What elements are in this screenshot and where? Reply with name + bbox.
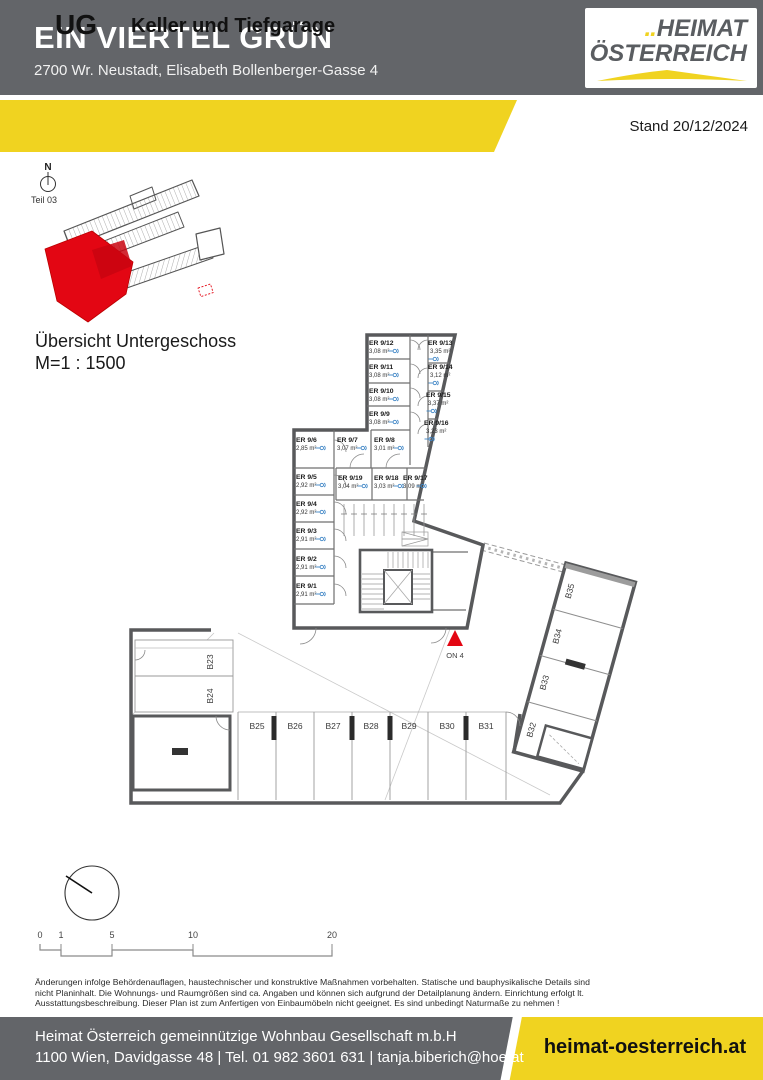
room-label: ER 9/7 [337, 437, 358, 444]
room-label: ER 9/2 [296, 556, 317, 563]
scale-bar: 0 1 5 10 20 [37, 930, 337, 956]
room-label: ER 9/19 [338, 475, 363, 482]
room-area: 2,91 m² [296, 592, 316, 598]
parking-spot-label: B30 [439, 721, 454, 731]
room-label: ER 9/4 [296, 501, 317, 508]
disclaimer-line: Ausstattungsbeschreibung. Dieser Plan is… [35, 998, 725, 1009]
room-label: ER 9/9 [369, 411, 390, 418]
parking-spot-label: B28 [363, 721, 378, 731]
parking-spot-label: B25 [249, 721, 264, 731]
garage-ramp [481, 543, 566, 572]
entrance-marker-label: ON 4 [446, 651, 464, 660]
room-label: ER 9/3 [296, 528, 317, 535]
room-label: ER 9/10 [369, 388, 394, 395]
footer-contact: 1100 Wien, Davidgasse 48 | Tel. 01 982 3… [35, 1049, 524, 1066]
room-area: 2,91 m² [296, 565, 316, 571]
room-area: 3,08 m² [369, 397, 389, 403]
room-label: ER 9/15 [426, 392, 451, 399]
parking-spot-label: B31 [478, 721, 493, 731]
room-label: ER 9/12 [369, 340, 394, 347]
north-indicator: N Teil 03 [31, 162, 57, 205]
parking-spot-label: B29 [401, 721, 416, 731]
parking-spot-label: B26 [287, 721, 302, 731]
room-area: 3,01 m² [374, 446, 394, 452]
parking-left-block: B23 B24 [135, 640, 233, 712]
room-area: 2,85 m² [296, 446, 316, 452]
room-area: 2,92 m² [296, 483, 316, 489]
elevator [384, 570, 412, 604]
room-label: ER 9/18 [374, 475, 399, 482]
room-label: ER 9/16 [424, 420, 449, 427]
room-area: 3,08 m² [369, 349, 389, 355]
room-area: 3,12 m² [430, 373, 450, 379]
part-label: Teil 03 [31, 195, 57, 205]
room-label: ER 9/17 [403, 475, 428, 482]
scale-tick: 0 [37, 930, 42, 940]
scale-tick: 10 [188, 930, 198, 940]
room-label: ER 9/14 [428, 364, 453, 371]
scale-tick: 1 [58, 930, 63, 940]
north-label: N [44, 162, 51, 173]
room-label: ER 9/13 [428, 340, 453, 347]
entrance-marker: ON 4 [446, 630, 464, 660]
room-label: ER 9/11 [369, 364, 393, 371]
parking-bottom-row: B25 B26 B27 B28 B29 B30 B31 [238, 712, 520, 800]
room-area: 3,07 m² [337, 446, 357, 452]
overview-map [0, 0, 224, 322]
room-area: 3,35 m² [430, 349, 450, 355]
disclaimer: Änderungen infolge Behördenauflagen, hau… [35, 977, 725, 1009]
room-label: ER 9/1 [296, 583, 317, 590]
plan-sheet: EIN VIERTEL GRÜN 2700 Wr. Neustadt, Elis… [0, 0, 763, 1080]
room-area: 3,08 m² [369, 420, 389, 426]
parking-spot-label: B23 [205, 654, 215, 669]
room-area: 3,37 m² [428, 401, 448, 407]
parking-spot-label: B27 [325, 721, 340, 731]
room-area: 3,03 m² [374, 484, 394, 490]
room-label: ER 9/5 [296, 474, 317, 481]
room-area: 2,92 m² [296, 510, 316, 516]
room-area: 2,91 m² [296, 537, 316, 543]
footer-company: Heimat Österreich gemeinnützige Wohnbau … [35, 1028, 457, 1045]
compass-icon [65, 866, 119, 920]
floor-plan-svg: N Teil 03 [0, 0, 763, 1080]
room-area: 3,04 m² [338, 484, 358, 490]
disclaimer-line: nicht Planinhalt. Die Wohnungs- und Raum… [35, 988, 725, 999]
room-label: ER 9/8 [374, 437, 395, 444]
room-area: 3,08 m² [369, 373, 389, 379]
parking-spot-label: B24 [205, 688, 215, 703]
main-plan: B35 B34 B33 B32 B23 B24 [131, 335, 635, 803]
room-label: ER 9/6 [296, 437, 317, 444]
bike-racks [341, 504, 427, 536]
storage-room-bottom-left [133, 716, 230, 790]
disclaimer-line: Änderungen infolge Behördenauflagen, hau… [35, 977, 725, 988]
scale-tick: 5 [109, 930, 114, 940]
scale-tick: 20 [327, 930, 337, 940]
room-area: 3,09 m² [403, 484, 423, 490]
footer-website-link[interactable]: heimat-oesterreich.at [535, 1036, 755, 1059]
stairwell [360, 550, 432, 612]
garage-wing: B35 B34 B33 B32 [514, 563, 636, 771]
room-area: 3,23 m² [426, 429, 446, 435]
